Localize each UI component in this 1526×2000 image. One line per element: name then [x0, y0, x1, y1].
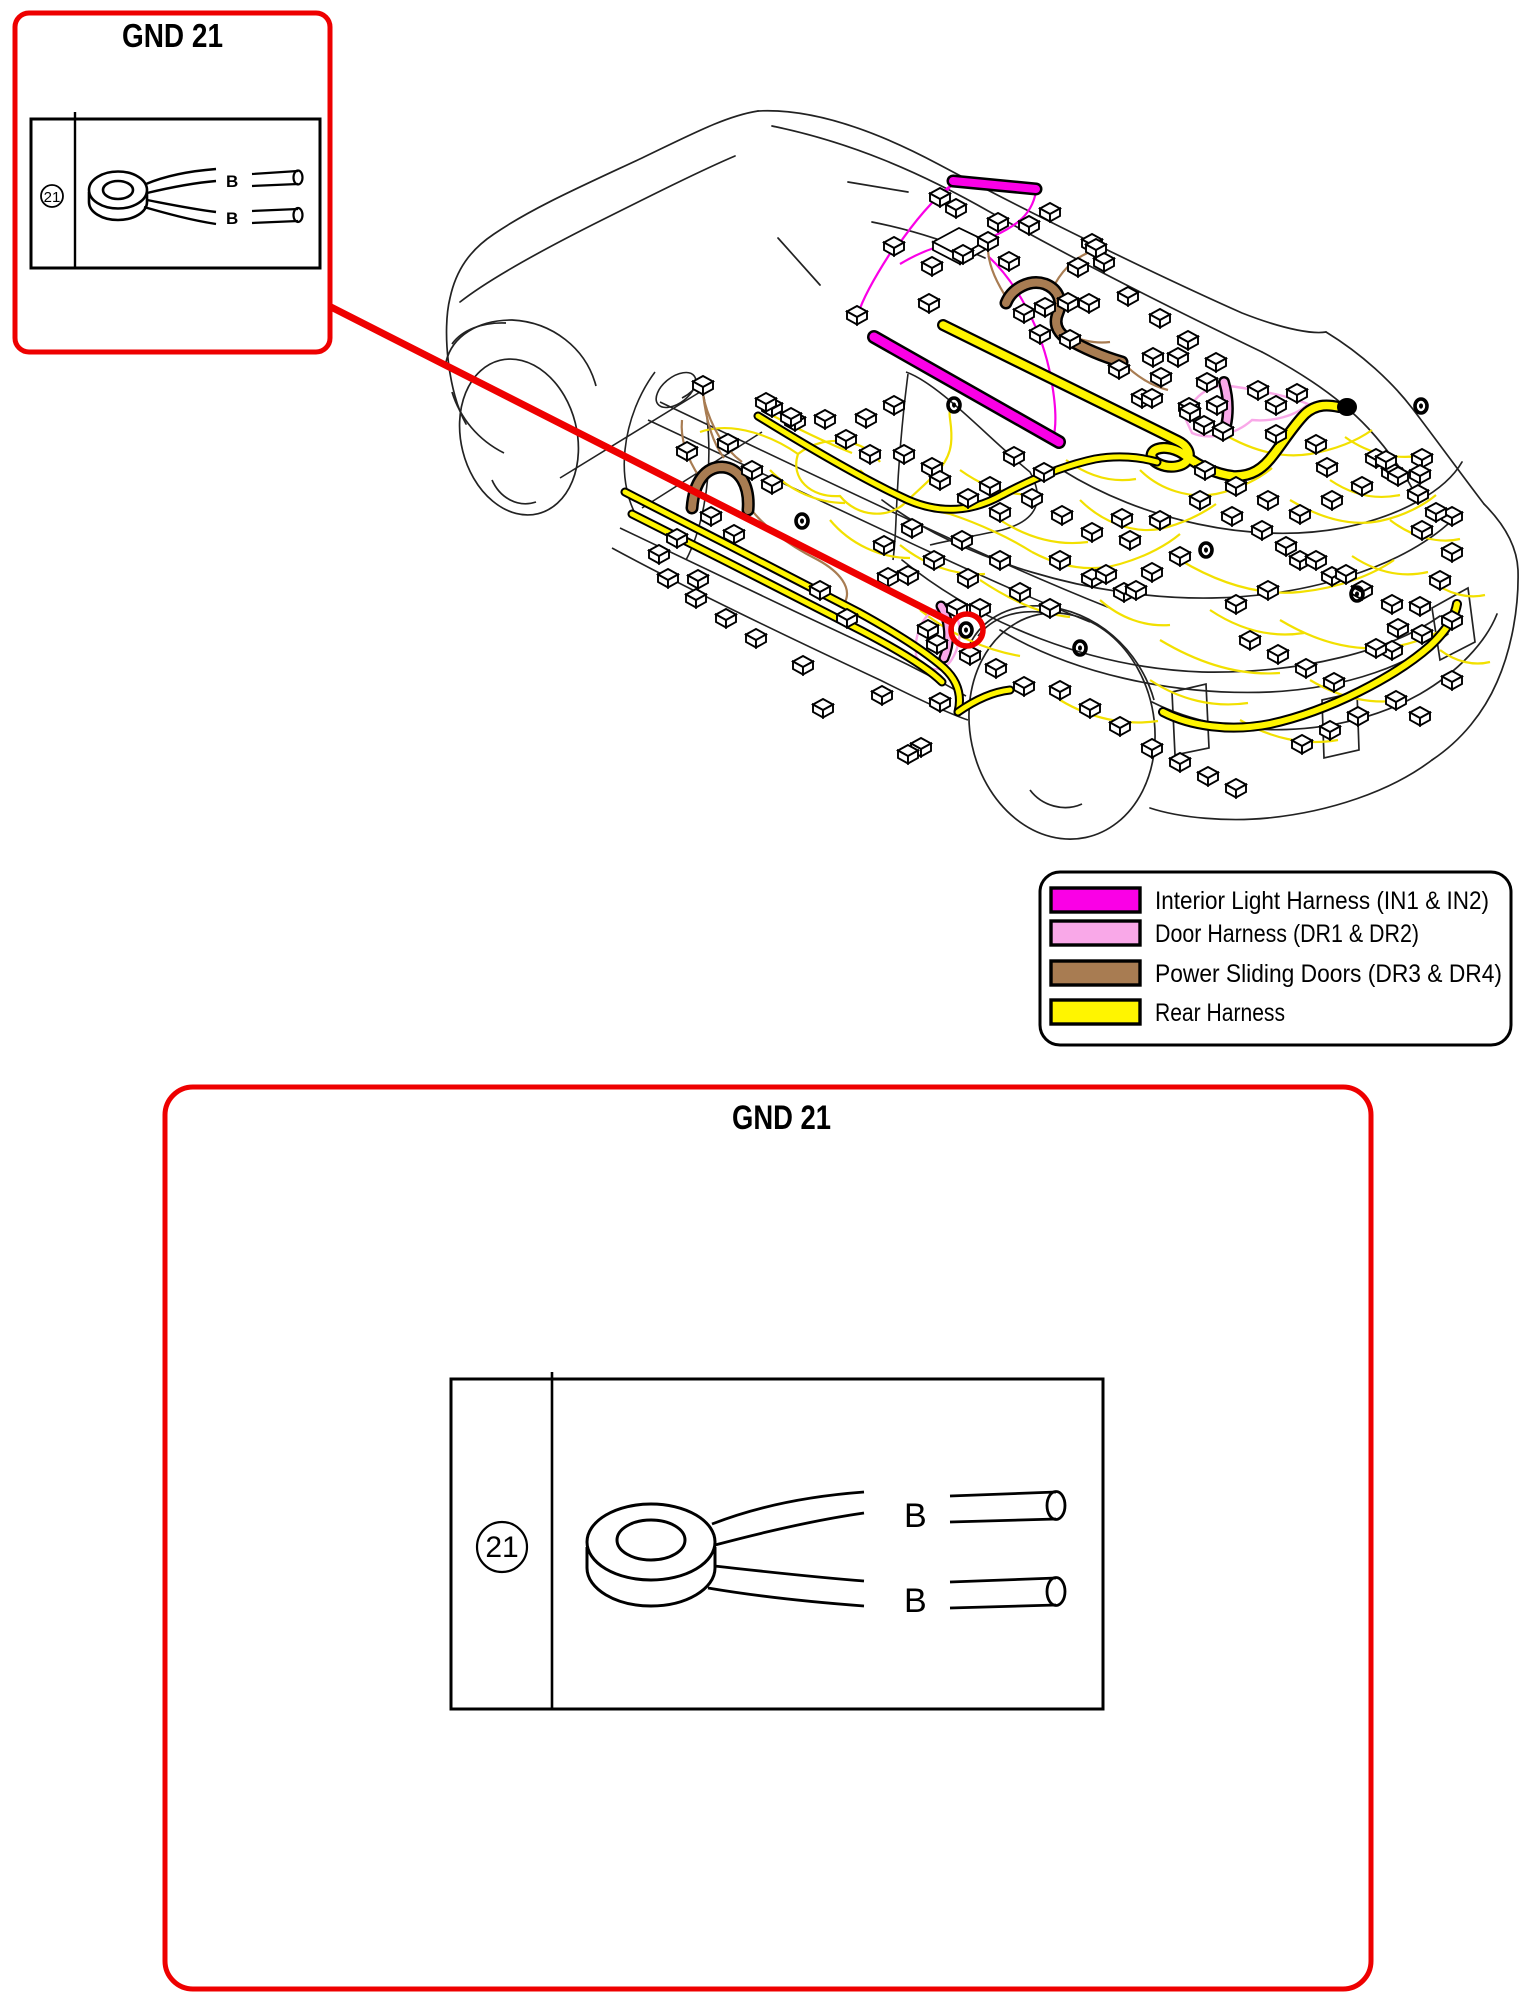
svg-text:GND 21: GND 21 — [122, 17, 223, 54]
svg-text:21: 21 — [44, 189, 61, 206]
svg-text:B: B — [904, 1497, 927, 1535]
svg-text:B: B — [904, 1582, 927, 1620]
svg-text:21: 21 — [485, 1531, 518, 1564]
svg-text:Interior Light Harness (IN1 &: Interior Light Harness (IN1 & IN2) — [1155, 887, 1489, 915]
svg-text:Rear Harness: Rear Harness — [1155, 999, 1285, 1027]
svg-text:GND 21: GND 21 — [732, 1099, 831, 1137]
svg-text:B: B — [226, 209, 238, 228]
svg-text:Door Harness (DR1 & DR2): Door Harness (DR1 & DR2) — [1155, 920, 1419, 948]
svg-text:Power Sliding Doors (DR3 & DR4: Power Sliding Doors (DR3 & DR4) — [1155, 960, 1502, 988]
svg-text:B: B — [226, 172, 238, 191]
